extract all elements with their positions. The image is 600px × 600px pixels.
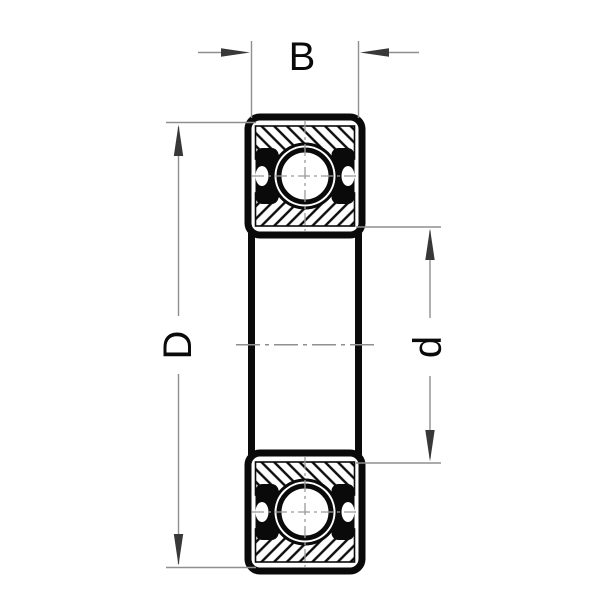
dim-label-D: D (148, 315, 208, 375)
bearing-section-bottom (248, 453, 362, 571)
arrow-up-icon (174, 125, 183, 157)
bearing-drawing-canvas (0, 0, 600, 600)
dim-label-d: d (398, 317, 458, 377)
bearing-section-top (248, 117, 362, 235)
bore-tube (252, 233, 359, 455)
arrow-up-icon (425, 229, 434, 261)
arrow-down-icon (425, 430, 434, 462)
bearing-cross-section-drawing: B D d (0, 0, 600, 600)
dim-label-B: B (272, 27, 332, 87)
arrow-right-icon (221, 48, 250, 57)
arrow-left-icon (360, 48, 389, 57)
arrow-down-icon (174, 534, 183, 566)
